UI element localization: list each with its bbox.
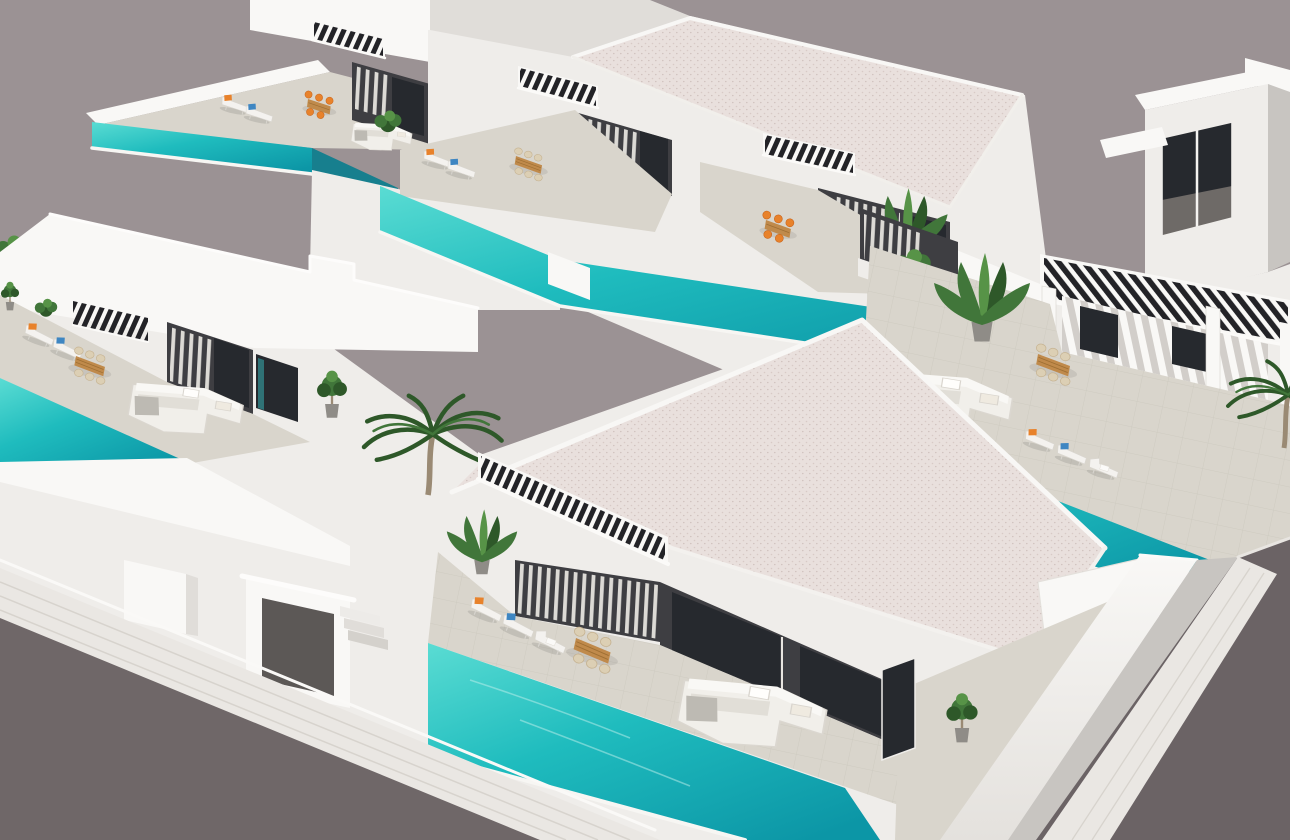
courtyard-glass-door xyxy=(882,658,915,760)
render-canvas: Aerial 3D render of modern white villas … xyxy=(0,0,1290,840)
tower-window xyxy=(1162,122,1232,236)
villa-render: Aerial 3D render of modern white villas … xyxy=(0,0,1290,840)
tower-side xyxy=(1268,84,1290,272)
glass-reflection xyxy=(258,358,264,410)
porch-glass-door xyxy=(1080,306,1118,358)
pillar-side xyxy=(186,574,198,636)
